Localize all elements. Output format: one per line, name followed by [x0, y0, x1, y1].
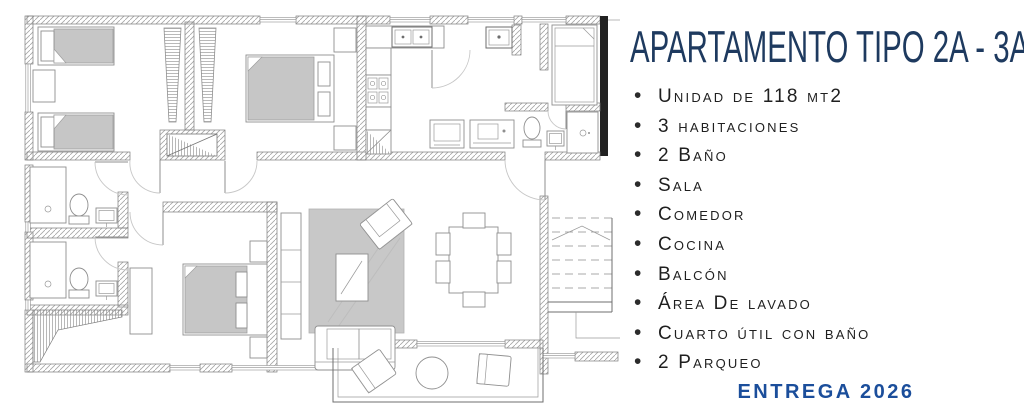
- tv-console: [281, 213, 301, 339]
- toilet: [70, 194, 88, 216]
- bedroom-1: [33, 27, 114, 151]
- feature-item: Comedor: [634, 200, 871, 230]
- pillow: [236, 272, 247, 297]
- nightstand: [33, 70, 55, 102]
- utility-bedroom: [552, 25, 597, 105]
- feature-item: Sala: [634, 171, 871, 201]
- pillow: [41, 31, 54, 61]
- pillow: [318, 62, 330, 86]
- feature-item: Unidad de 118 mt2: [634, 82, 871, 112]
- dining-chair: [436, 233, 450, 255]
- shower: [30, 167, 66, 223]
- feature-item: 3 habitaciones: [634, 112, 871, 142]
- dresser: [130, 268, 152, 334]
- dining-chair: [463, 292, 485, 307]
- closet: [199, 28, 216, 122]
- nightstand: [334, 28, 356, 52]
- pillow: [318, 92, 330, 116]
- pillow: [236, 303, 247, 328]
- dining-area: [436, 213, 511, 307]
- toilet: [524, 117, 540, 139]
- feature-list: Unidad de 118 mt2 3 habitaciones 2 Baño …: [634, 82, 871, 378]
- exterior-wall-dark: [600, 16, 608, 156]
- feature-item: 2 Baño: [634, 141, 871, 171]
- counter: [366, 107, 391, 130]
- plan-title: APARTAMENTO TIPO 2A - 3A: [630, 22, 1024, 72]
- bedroom-2: [246, 28, 356, 150]
- shower: [567, 112, 598, 153]
- nightstand: [250, 337, 267, 358]
- delivery-year: Entrega 2026: [628, 381, 1024, 404]
- single-bed: [552, 25, 597, 105]
- coffee-table: [336, 254, 368, 301]
- master-bedroom: [130, 241, 267, 358]
- feature-item: Cuarto útil con baño: [634, 319, 871, 349]
- dining-chair: [497, 233, 511, 255]
- counter: [366, 48, 391, 75]
- bathroom-1: [30, 167, 117, 227]
- feature-item: Cocina: [634, 230, 871, 260]
- feature-item: Área De lavado: [634, 289, 871, 319]
- shower: [30, 242, 66, 298]
- dining-table: [449, 227, 498, 293]
- pillow: [41, 117, 54, 147]
- floor-plan: [0, 0, 620, 410]
- dining-chair: [497, 261, 511, 283]
- feature-item: 2 Parqueo: [634, 348, 871, 378]
- dining-chair: [436, 261, 450, 283]
- page: { "panel": { "title": "APARTAMENTO TIPO …: [0, 0, 1024, 410]
- living-room: [281, 198, 412, 370]
- floor-plan-drawing: [0, 0, 620, 410]
- balcony-table: [416, 357, 448, 389]
- dining-chair: [463, 213, 485, 228]
- utility-bathroom: [523, 112, 598, 153]
- stove: [366, 75, 391, 107]
- closet: [164, 28, 181, 122]
- info-panel: APARTAMENTO TIPO 2A - 3A Unidad de 118 m…: [628, 0, 1024, 410]
- staircase: [548, 218, 620, 338]
- balcony-chair: [477, 354, 511, 387]
- toilet: [70, 268, 88, 290]
- feature-item: Balcón: [634, 260, 871, 290]
- bathroom-2: [30, 242, 117, 300]
- nightstand: [250, 241, 267, 262]
- nightstand: [334, 126, 356, 150]
- wardrobe: [33, 310, 122, 362]
